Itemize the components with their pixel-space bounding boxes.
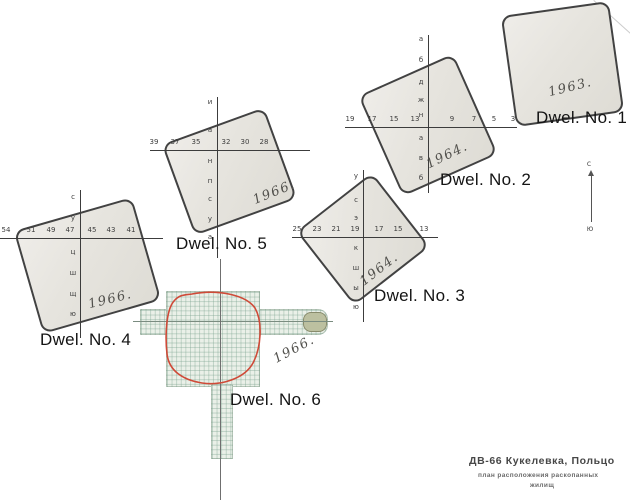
axis-letter: с bbox=[208, 196, 212, 203]
title-line-3: жилищ bbox=[530, 482, 554, 489]
compass-south-label: ю bbox=[587, 224, 594, 233]
axis-letter: ю bbox=[353, 304, 359, 311]
axis-line-v-d3 bbox=[363, 170, 364, 322]
axis-tick: 3 bbox=[511, 116, 515, 123]
year-note-6: 1966. bbox=[271, 332, 318, 366]
axis-tick: 13 bbox=[420, 226, 429, 233]
axis-tick: 5 bbox=[492, 116, 496, 123]
axis-line-h-d5 bbox=[150, 150, 310, 151]
axis-letter: а bbox=[208, 127, 212, 134]
axis-letter: н bbox=[208, 158, 213, 165]
excavation-square-5 bbox=[162, 107, 298, 235]
grid-strip-end-cap bbox=[303, 312, 327, 332]
axis-letter: н bbox=[419, 112, 424, 119]
red-outline bbox=[160, 288, 268, 388]
axis-tick: 21 bbox=[332, 226, 341, 233]
axis-letter: б bbox=[419, 57, 423, 64]
axis-letter: с bbox=[71, 194, 75, 201]
axis-tick: 17 bbox=[368, 116, 377, 123]
axis-line-h-d4 bbox=[0, 238, 163, 239]
axis-letter: п bbox=[208, 178, 213, 185]
axis-letter: ж bbox=[418, 97, 424, 104]
axis-tick: 37 bbox=[171, 139, 180, 146]
dwelling-label-3: Dwel. No. 3 bbox=[374, 286, 465, 306]
axis-tick: 19 bbox=[346, 116, 355, 123]
axis-letter: у bbox=[71, 215, 75, 222]
axis-letter: ш bbox=[353, 265, 359, 272]
axis-tick: 41 bbox=[127, 227, 136, 234]
dwelling-label-5: Dwel. No. 5 bbox=[176, 234, 267, 254]
axis-tick: 54 bbox=[2, 227, 11, 234]
axis-tick: 43 bbox=[107, 227, 116, 234]
axis-letter: б bbox=[419, 175, 423, 182]
axis-tick: 39 bbox=[150, 139, 159, 146]
axis-letter: э bbox=[354, 215, 358, 222]
axis-letter: ш bbox=[70, 270, 76, 277]
axis-tick: 51 bbox=[27, 227, 36, 234]
axis-line-h-d3 bbox=[292, 237, 438, 238]
axis-tick: 35 bbox=[192, 139, 201, 146]
compass-north-label: с bbox=[587, 159, 591, 168]
axis-letter: к bbox=[354, 245, 358, 252]
axis-letter: а bbox=[419, 135, 423, 142]
dwelling-label-2: Dwel. No. 2 bbox=[440, 170, 531, 190]
title-line-1: ДВ-66 Кукелевка, Польцо bbox=[469, 455, 615, 467]
axis-letter: с bbox=[354, 197, 358, 204]
axis-tick: 19 bbox=[351, 226, 360, 233]
north-arrow-head bbox=[588, 170, 594, 176]
dwelling-label-1: Dwel. No. 1 bbox=[536, 108, 627, 128]
axis-tick: 49 bbox=[47, 227, 56, 234]
axis-letter: у bbox=[208, 216, 212, 223]
dwelling-label-6: Dwel. No. 6 bbox=[230, 390, 321, 410]
axis-tick: 17 bbox=[375, 226, 384, 233]
axis-tick: 30 bbox=[241, 139, 250, 146]
axis-tick: 45 bbox=[88, 227, 97, 234]
axis-tick: 25 bbox=[293, 226, 302, 233]
axis-letter: ц bbox=[71, 249, 76, 256]
axis-line-v-d4 bbox=[80, 190, 81, 338]
axis-tick: 32 bbox=[222, 139, 231, 146]
axis-letter: в bbox=[419, 155, 423, 162]
axis-line-h-d2 bbox=[345, 127, 517, 128]
axis-letter: ы bbox=[353, 285, 359, 292]
title-line-2: план расположения раскопанных bbox=[478, 472, 598, 479]
axis-tick: 47 bbox=[66, 227, 75, 234]
plan-canvas: 1963. Dwel. No. 1 19 17 15 13 9 7 5 3 а … bbox=[0, 0, 630, 504]
dwelling-label-4: Dwel. No. 4 bbox=[40, 330, 131, 350]
axis-tick: 28 bbox=[260, 139, 269, 146]
axis-tick: 9 bbox=[450, 116, 454, 123]
axis-tick: 15 bbox=[394, 226, 403, 233]
axis-letter: у bbox=[354, 173, 358, 180]
axis-tick: 7 bbox=[472, 116, 476, 123]
axis-letter: ю bbox=[70, 311, 76, 318]
north-arrow-line bbox=[591, 175, 592, 222]
axis-letter: щ bbox=[70, 291, 77, 298]
axis-tick: 23 bbox=[313, 226, 322, 233]
axis-letter: а bbox=[419, 36, 423, 43]
axis-letter: и bbox=[208, 99, 213, 106]
axis-letter: д bbox=[419, 79, 424, 86]
axis-tick: 15 bbox=[390, 116, 399, 123]
